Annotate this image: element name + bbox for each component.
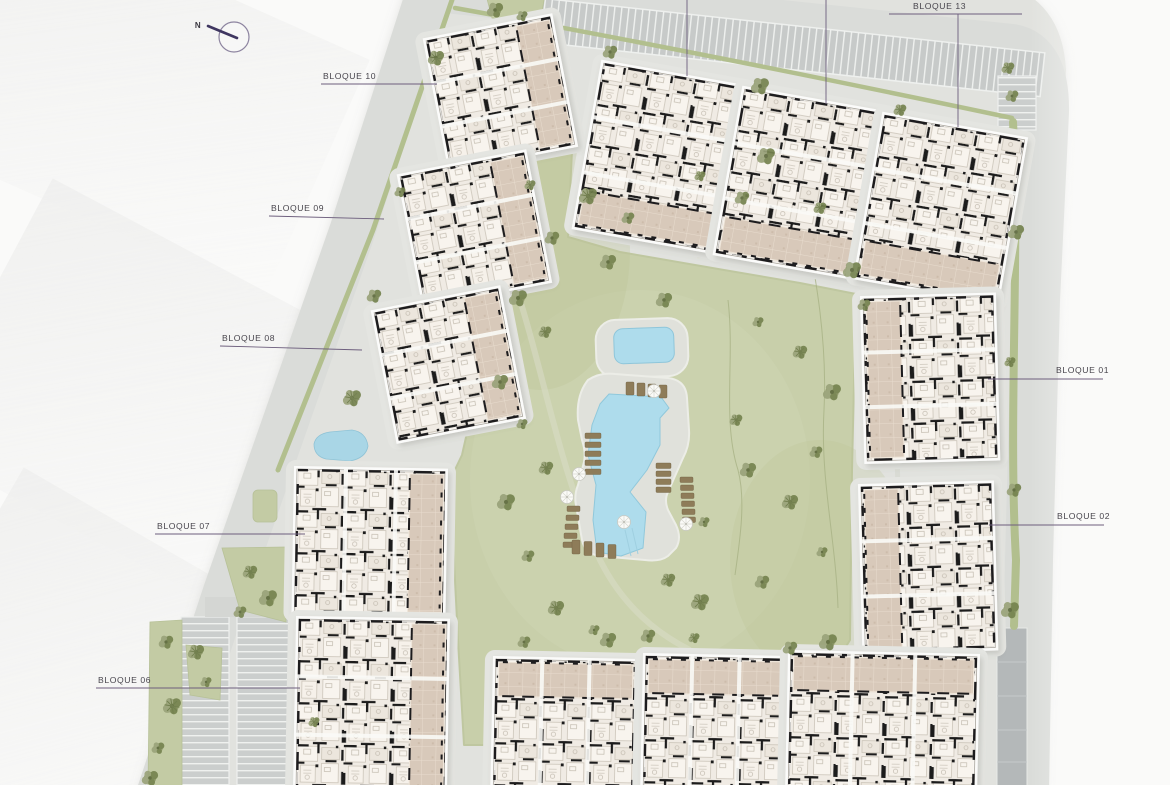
lounger-icon [564, 533, 577, 539]
lounger-icon [572, 540, 580, 554]
lounger-icon [565, 524, 578, 530]
terrace [864, 489, 902, 648]
lounger-icon [680, 477, 693, 483]
compass-north-label: N [195, 21, 201, 30]
block-label-text: BLOQUE 01 [1056, 365, 1109, 375]
building-bottom-row-3[interactable] [777, 644, 988, 785]
building-bloque-06[interactable] [285, 610, 458, 785]
lounger-icon [585, 469, 601, 475]
parking-strip-southwest-1 [181, 617, 229, 785]
terrace [648, 659, 783, 696]
block-label-text: BLOQUE 08 [222, 333, 275, 343]
right-fade-vignette [1030, 0, 1170, 785]
umbrella-icon [561, 491, 574, 504]
terrace [408, 474, 444, 613]
lounger-icon [567, 506, 580, 512]
block-label-text: BLOQUE 02 [1057, 511, 1110, 521]
lounger-icon [682, 501, 695, 507]
lounger-icon [626, 382, 634, 395]
lounger-icon [584, 542, 592, 556]
terrace [409, 624, 446, 785]
block-label-text: BLOQUE 06 [98, 675, 151, 685]
lounger-icon [637, 383, 645, 396]
building-bloque-02[interactable] [850, 474, 1007, 660]
block-label-text: BLOQUE 10 [323, 71, 376, 81]
lounger-icon [656, 471, 671, 477]
umbrella-icon [648, 385, 661, 398]
block-label-text: BLOQUE 09 [271, 203, 324, 213]
terrace [793, 656, 974, 694]
lounger-icon [585, 433, 601, 439]
parking-strip-southwest-2 [237, 615, 289, 785]
building-bloque-08[interactable] [362, 278, 536, 452]
block-label-text: BLOQUE 13 [913, 1, 966, 11]
lounger-icon [608, 545, 616, 559]
upper-pool-water [613, 327, 674, 364]
lounger-icon [656, 463, 671, 469]
lounger-icon [656, 479, 671, 485]
building-bloque-13[interactable] [844, 104, 1037, 312]
pond [314, 430, 368, 461]
lounger-icon [681, 485, 694, 491]
lounger-icon [566, 515, 579, 521]
lounger-icon [585, 460, 601, 466]
lounger-icon [596, 543, 604, 557]
umbrella-icon [618, 516, 631, 529]
lounger-icon [682, 509, 695, 515]
lounger-icon [656, 487, 671, 493]
building-bottom-row-1[interactable] [482, 650, 647, 785]
umbrella-icon [680, 518, 693, 531]
umbrella-icon [573, 468, 586, 481]
terrace [498, 662, 633, 699]
block-label-text: BLOQUE 07 [157, 521, 210, 531]
lounger-icon [585, 451, 601, 457]
building-bottom-row-2[interactable] [632, 647, 797, 785]
building-bloque-07[interactable] [283, 460, 456, 625]
site-plan: BLOQUE 10BLOQUE 09BLOQUE 08BLOQUE 07BLOQ… [0, 0, 1170, 785]
masterplan-canvas: BLOQUE 10BLOQUE 09BLOQUE 08BLOQUE 07BLOQ… [0, 0, 1170, 785]
lounger-icon [681, 493, 694, 499]
terrace [866, 301, 904, 458]
lounger-icon [585, 442, 601, 448]
building-bloque-01[interactable] [852, 286, 1009, 470]
